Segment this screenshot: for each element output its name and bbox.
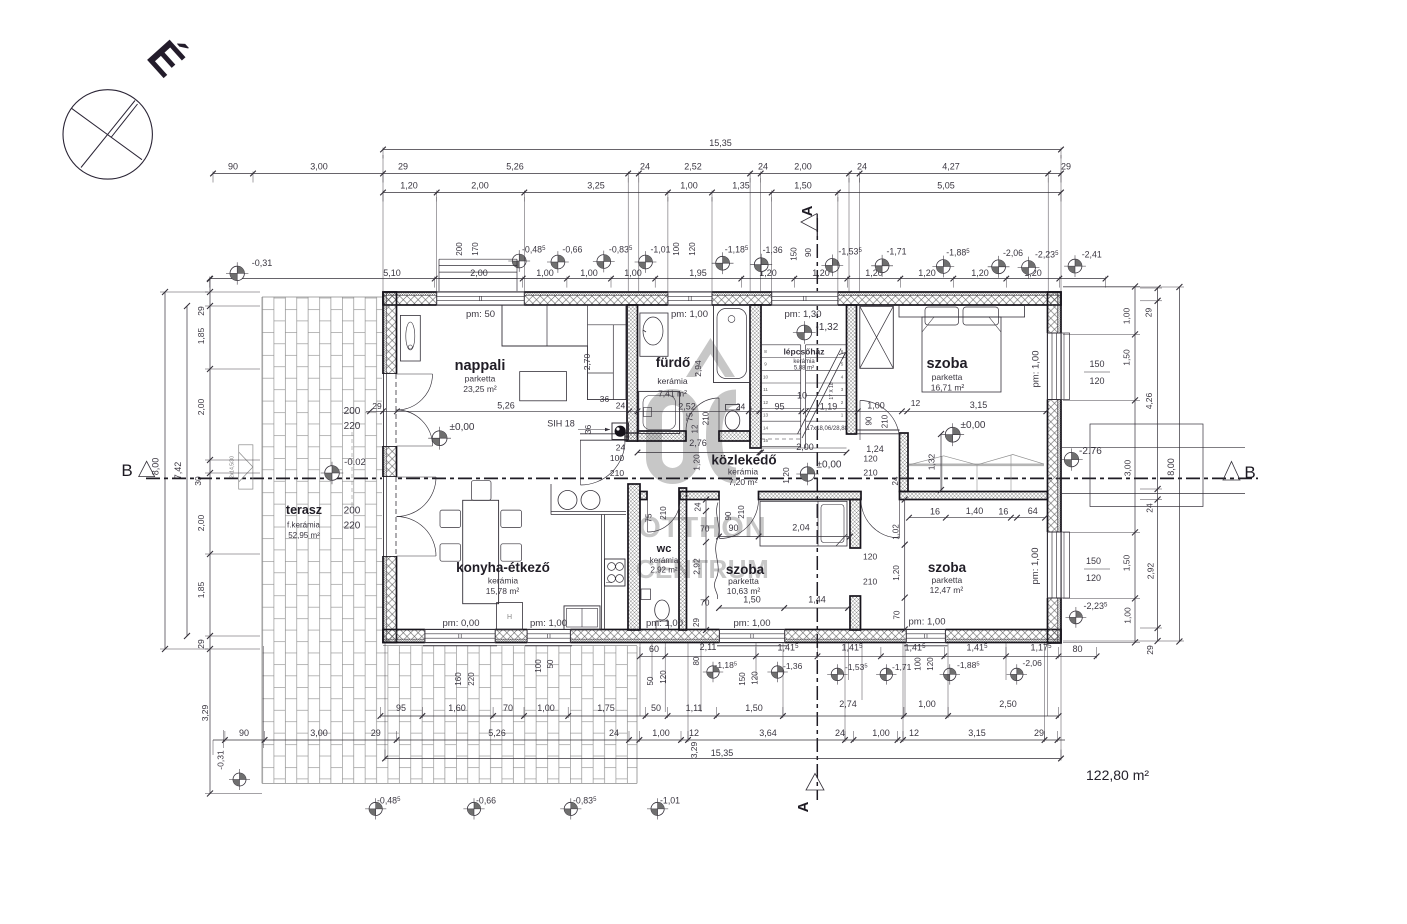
svg-text:200: 200: [344, 506, 361, 517]
svg-text:parketta: parketta: [465, 374, 496, 384]
svg-text:120: 120: [751, 671, 760, 685]
svg-text:17 X 18: 17 X 18: [829, 382, 835, 399]
svg-text:-1,885: -1,885: [957, 660, 980, 670]
svg-text:8: 8: [764, 349, 767, 354]
svg-text:2,76: 2,76: [689, 438, 707, 448]
svg-text:SIH 18: SIH 18: [547, 419, 575, 429]
svg-text:1,50: 1,50: [794, 181, 812, 191]
svg-text:200: 200: [344, 406, 361, 417]
svg-text:2,00: 2,00: [196, 398, 206, 415]
svg-text:90: 90: [865, 416, 874, 425]
svg-text:16: 16: [998, 507, 1008, 517]
svg-text:-2,41: -2,41: [1082, 250, 1102, 260]
svg-text:90: 90: [804, 248, 813, 257]
svg-text:±0,00: ±0,00: [817, 460, 842, 471]
svg-text:2,00: 2,00: [196, 514, 206, 531]
svg-text:1,00: 1,00: [1122, 307, 1132, 324]
svg-text:1,00: 1,00: [624, 268, 642, 278]
svg-text:3,25: 3,25: [587, 181, 605, 191]
svg-text:70: 70: [700, 524, 710, 534]
svg-text:29: 29: [398, 162, 408, 172]
svg-text:15,78 m²: 15,78 m²: [486, 586, 520, 596]
svg-text:29: 29: [371, 728, 381, 738]
svg-text:29: 29: [1145, 645, 1155, 655]
svg-text:24: 24: [835, 728, 845, 738]
svg-text:120: 120: [1089, 376, 1104, 386]
svg-text:1,32: 1,32: [927, 453, 937, 470]
svg-text:A: A: [795, 801, 812, 812]
svg-text:kerámia: kerámia: [793, 359, 815, 365]
svg-text:pm: 1,00: pm: 1,00: [530, 618, 567, 629]
svg-text:-1,71: -1,71: [892, 662, 912, 672]
svg-text:210: 210: [702, 411, 711, 425]
svg-text:1,24: 1,24: [866, 444, 884, 454]
svg-text:H: H: [507, 614, 512, 621]
svg-text:2: 2: [841, 400, 844, 405]
svg-text:75: 75: [686, 412, 695, 421]
svg-text:-1,32: -1,32: [816, 322, 839, 333]
svg-text:12: 12: [909, 728, 919, 738]
svg-text:A: A: [799, 205, 816, 216]
svg-text:1,19: 1,19: [820, 402, 838, 412]
svg-text:170: 170: [471, 242, 480, 256]
svg-text:100: 100: [914, 657, 923, 671]
svg-text:2,70: 2,70: [582, 353, 592, 370]
svg-text:70: 70: [700, 598, 710, 608]
svg-text:1,20: 1,20: [400, 181, 418, 191]
svg-text:75: 75: [645, 513, 654, 522]
svg-text:7,20 m²: 7,20 m²: [729, 477, 758, 487]
svg-text:120: 120: [863, 454, 877, 464]
svg-text:konyha-étkező: konyha-étkező: [456, 560, 550, 575]
svg-text:1,00: 1,00: [652, 728, 670, 738]
svg-text:1,44: 1,44: [808, 595, 826, 605]
svg-text:80: 80: [692, 656, 701, 665]
svg-text:1,20: 1,20: [918, 268, 936, 278]
svg-text:15,35: 15,35: [711, 748, 734, 758]
svg-text:3,00: 3,00: [1123, 459, 1133, 476]
svg-text:220: 220: [344, 421, 361, 432]
svg-text:-1,01: -1,01: [651, 245, 671, 255]
svg-text:36: 36: [583, 425, 593, 435]
svg-text:2,00: 2,00: [470, 268, 488, 278]
svg-text:1,00: 1,00: [872, 728, 890, 738]
svg-text:1: 1: [841, 413, 844, 418]
svg-text:29: 29: [196, 306, 206, 316]
svg-text:kerámia: kerámia: [728, 467, 759, 477]
svg-text:-0,66: -0,66: [476, 796, 496, 806]
svg-text:24: 24: [640, 162, 650, 172]
svg-text:parketta: parketta: [932, 372, 963, 382]
svg-text:2,92 m²: 2,92 m²: [650, 566, 677, 575]
svg-text:szoba: szoba: [726, 562, 765, 577]
svg-text:pm: 50: pm: 50: [466, 309, 495, 320]
svg-text:±0,00: ±0,00: [450, 422, 475, 433]
svg-text:150: 150: [738, 672, 747, 686]
svg-text:90: 90: [239, 728, 249, 738]
svg-text:3,64: 3,64: [759, 728, 777, 738]
svg-text:pm: 1,00: pm: 1,00: [1031, 351, 1042, 388]
svg-text:9: 9: [764, 362, 767, 367]
svg-text:24: 24: [616, 443, 626, 453]
svg-text:1,20: 1,20: [971, 268, 989, 278]
svg-text:2,92: 2,92: [692, 558, 702, 575]
svg-text:kerámia: kerámia: [650, 556, 679, 565]
svg-text:160: 160: [454, 672, 463, 686]
svg-text:50: 50: [546, 659, 555, 668]
svg-text:-0,66: -0,66: [562, 245, 582, 255]
svg-text:52,95 m²: 52,95 m²: [288, 531, 320, 540]
svg-text:-2,06: -2,06: [1003, 248, 1023, 258]
svg-text:1,00: 1,00: [680, 181, 698, 191]
svg-text:210: 210: [659, 506, 668, 520]
svg-text:15,35: 15,35: [709, 138, 732, 148]
svg-text:220: 220: [344, 521, 361, 532]
svg-text:B: B: [1244, 463, 1255, 482]
svg-text:29: 29: [196, 639, 206, 649]
svg-text:4,26: 4,26: [1144, 392, 1154, 409]
svg-text:-1,36: -1,36: [763, 245, 783, 255]
svg-text:pm: 1,00: pm: 1,00: [734, 618, 771, 629]
svg-text:80: 80: [1072, 644, 1082, 654]
svg-text:fürdő: fürdő: [656, 355, 691, 370]
svg-text:210: 210: [610, 468, 624, 478]
svg-text:±0,00: ±0,00: [961, 420, 986, 431]
svg-text:2,50: 2,50: [999, 699, 1017, 709]
svg-text:120: 120: [659, 670, 668, 684]
svg-text:24: 24: [616, 401, 626, 411]
svg-text:150: 150: [790, 247, 799, 261]
svg-text:1,95: 1,95: [689, 268, 707, 278]
svg-text:12: 12: [689, 728, 699, 738]
svg-text:90: 90: [728, 523, 738, 533]
svg-text:pm: 1,00: pm: 1,00: [909, 617, 946, 628]
svg-text:122,80 m²: 122,80 m²: [1086, 767, 1149, 783]
svg-text:kerámia: kerámia: [488, 576, 519, 586]
svg-text:64: 64: [1028, 506, 1038, 516]
svg-text:-1,01: -1,01: [660, 796, 680, 806]
svg-text:parketta: parketta: [728, 576, 759, 586]
svg-text:terasz: terasz: [286, 503, 322, 517]
svg-text:nappali: nappali: [455, 358, 506, 374]
svg-text:1,50: 1,50: [1122, 349, 1132, 366]
svg-text:8,00: 8,00: [151, 458, 161, 476]
svg-text:5: 5: [841, 362, 844, 367]
svg-text:29: 29: [692, 618, 701, 627]
svg-text:210: 210: [863, 577, 877, 587]
svg-text:90: 90: [228, 162, 238, 172]
svg-text:12: 12: [911, 398, 921, 408]
svg-text:1,02: 1,02: [892, 524, 901, 540]
svg-text:220: 220: [467, 672, 476, 686]
svg-text:2x14,5/30: 2x14,5/30: [230, 456, 236, 478]
svg-text:pm: 1,00: pm: 1,00: [1030, 548, 1041, 585]
svg-text:-1,71: -1,71: [887, 247, 907, 257]
svg-text:120: 120: [1086, 573, 1101, 583]
svg-text:1,60: 1,60: [448, 703, 466, 713]
svg-text:150: 150: [1089, 359, 1104, 369]
svg-text:wc: wc: [656, 543, 672, 555]
svg-text:14: 14: [763, 426, 769, 431]
svg-text:11: 11: [763, 387, 768, 392]
svg-text:3,00: 3,00: [310, 728, 328, 738]
svg-text:50: 50: [646, 676, 655, 685]
svg-text:29: 29: [1144, 308, 1154, 318]
svg-text:95: 95: [396, 703, 406, 713]
svg-text:7,42: 7,42: [173, 462, 183, 480]
svg-text:1,50: 1,50: [1122, 554, 1132, 571]
svg-text:3,29: 3,29: [689, 741, 699, 758]
svg-text:2,94: 2,94: [693, 360, 703, 377]
svg-text:210: 210: [737, 505, 746, 519]
svg-text:1,85: 1,85: [196, 581, 206, 598]
svg-text:90: 90: [724, 511, 733, 520]
svg-text:60: 60: [649, 644, 659, 654]
svg-text:1,20: 1,20: [781, 467, 791, 484]
svg-text:1,00: 1,00: [1123, 607, 1133, 624]
svg-text:2,74: 2,74: [839, 699, 857, 709]
svg-text:3,15: 3,15: [968, 728, 986, 738]
svg-text:10: 10: [763, 375, 769, 380]
svg-text:-0.02: -0.02: [344, 457, 366, 468]
svg-text:pm: 1,00: pm: 1,00: [671, 309, 708, 320]
svg-text:17x18,06/28,88: 17x18,06/28,88: [807, 426, 849, 432]
svg-text:100: 100: [610, 453, 624, 463]
svg-text:12,47 m²: 12,47 m²: [930, 585, 964, 595]
svg-text:-1,36: -1,36: [783, 661, 803, 671]
svg-text:24: 24: [857, 162, 867, 172]
svg-text:2,52: 2,52: [684, 162, 702, 172]
svg-text:24: 24: [694, 502, 703, 511]
svg-text:1,50: 1,50: [743, 595, 761, 605]
svg-text:120: 120: [863, 552, 877, 562]
svg-text:15: 15: [763, 438, 769, 443]
svg-text:5,88 m²: 5,88 m²: [794, 366, 814, 372]
svg-text:12: 12: [691, 424, 700, 433]
svg-text:4: 4: [841, 375, 844, 380]
svg-text:24: 24: [1145, 503, 1155, 513]
svg-text:5,10: 5,10: [383, 268, 401, 278]
svg-text:3,15: 3,15: [970, 400, 988, 410]
svg-text:2,52: 2,52: [678, 402, 696, 412]
svg-text:30: 30: [193, 476, 203, 486]
svg-text:3,00: 3,00: [310, 162, 328, 172]
svg-text:24: 24: [758, 162, 768, 172]
svg-text:B: B: [121, 461, 132, 480]
svg-text:120: 120: [926, 657, 935, 671]
svg-text:1,00: 1,00: [918, 699, 936, 709]
svg-text:1,20: 1,20: [692, 454, 702, 471]
svg-text:2,00: 2,00: [794, 162, 812, 172]
svg-text:200: 200: [455, 242, 464, 256]
svg-text:2,11: 2,11: [700, 642, 717, 652]
svg-text:kerámia: kerámia: [657, 376, 688, 386]
svg-text:5,26: 5,26: [488, 728, 506, 738]
svg-text:2,00: 2,00: [796, 442, 814, 452]
svg-text:24: 24: [891, 476, 900, 485]
svg-text:13: 13: [763, 413, 769, 418]
svg-text:150: 150: [1086, 556, 1101, 566]
svg-text:pm: 1,30: pm: 1,30: [785, 309, 822, 320]
svg-text:50: 50: [651, 703, 661, 713]
svg-text:1,40: 1,40: [966, 506, 984, 516]
svg-text:1,00: 1,00: [580, 268, 598, 278]
svg-text:-0,31: -0,31: [216, 750, 226, 770]
svg-text:1,00: 1,00: [867, 401, 885, 411]
svg-text:1,00: 1,00: [537, 703, 555, 713]
svg-text:12: 12: [763, 400, 769, 405]
svg-text:3: 3: [841, 387, 844, 392]
svg-text:2,92: 2,92: [1146, 562, 1156, 579]
svg-text:120: 120: [688, 242, 697, 256]
svg-text:1,20: 1,20: [892, 565, 901, 581]
svg-text:-2,06: -2,06: [1023, 658, 1043, 668]
svg-text:7,41 m²: 7,41 m²: [658, 389, 687, 399]
svg-text:-1,185: -1,185: [715, 660, 738, 670]
svg-text:29: 29: [372, 401, 382, 411]
svg-text:16,71 m²: 16,71 m²: [931, 383, 965, 393]
svg-text:5,05: 5,05: [937, 181, 955, 191]
svg-text:70: 70: [892, 610, 901, 619]
svg-text:4,27: 4,27: [942, 162, 960, 172]
svg-text:5,26: 5,26: [497, 401, 515, 411]
svg-text:szoba: szoba: [926, 356, 968, 372]
svg-text:24: 24: [736, 402, 746, 412]
svg-text:95: 95: [774, 402, 784, 412]
svg-text:-0,31: -0,31: [252, 258, 273, 268]
svg-text:parketta: parketta: [932, 575, 963, 585]
svg-text:f.kerámia: f.kerámia: [287, 521, 320, 530]
svg-text:1,75: 1,75: [597, 703, 615, 713]
svg-text:pm: 1,00: pm: 1,00: [646, 618, 683, 629]
svg-text:1,50: 1,50: [745, 703, 763, 713]
svg-text:2,00: 2,00: [471, 181, 489, 191]
svg-text:pm: 0,00: pm: 0,00: [443, 618, 480, 629]
svg-text:100: 100: [672, 242, 681, 256]
svg-text:24: 24: [609, 728, 619, 738]
svg-text:2,04: 2,04: [792, 523, 810, 533]
svg-text:3,29: 3,29: [200, 704, 210, 721]
svg-text:szoba: szoba: [928, 560, 967, 575]
svg-text:23,25 m²: 23,25 m²: [463, 384, 497, 394]
svg-text:lépcsőház: lépcsőház: [783, 347, 824, 357]
svg-text:70: 70: [503, 703, 513, 713]
svg-text:16: 16: [930, 507, 940, 517]
svg-text:1,35: 1,35: [732, 181, 750, 191]
svg-text:29: 29: [1034, 728, 1044, 738]
svg-text:1,00: 1,00: [536, 268, 554, 278]
svg-text:210: 210: [881, 414, 890, 428]
svg-text:1,85: 1,85: [196, 327, 206, 344]
svg-text:8,00: 8,00: [1166, 458, 1176, 476]
svg-text:36: 36: [600, 394, 610, 404]
svg-text:10: 10: [797, 391, 807, 401]
svg-text:29: 29: [1061, 162, 1071, 172]
svg-text:100: 100: [534, 659, 543, 673]
svg-text:5,26: 5,26: [506, 162, 524, 172]
svg-text:210: 210: [863, 468, 877, 478]
svg-text:közlekedő: közlekedő: [711, 453, 776, 468]
